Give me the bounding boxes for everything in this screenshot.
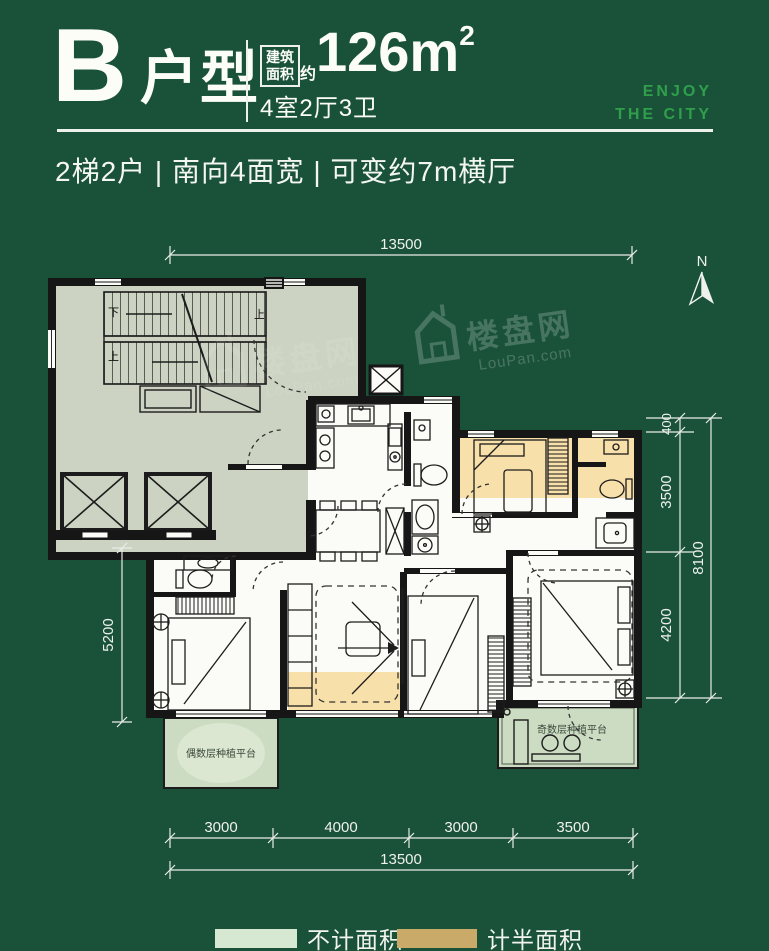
dim-top-total: 13500 xyxy=(380,236,422,253)
dim-bottom-1: 4000 xyxy=(324,819,357,836)
platform-left: 偶数层种植平台 xyxy=(164,718,278,788)
wardrobe xyxy=(176,597,234,614)
legend-item-no-area: 不计面积 xyxy=(215,921,403,951)
stair-up-label: 上 xyxy=(108,350,119,363)
legend-swatch-no-area xyxy=(215,929,297,948)
floorplan-poster: B 户型 建筑 面积 约 126m2 4室2厅3卫 ENJOY THE CITY… xyxy=(0,0,769,951)
legend: 不计面积 计半面积 xyxy=(0,912,769,951)
legend-item-half-area: 计半面积 xyxy=(397,921,583,951)
dim-right-total: 8100 xyxy=(690,541,707,574)
flue-shaft xyxy=(370,366,402,394)
platform-right-label: 奇数层种植平台 xyxy=(537,723,607,736)
stair-up-label: 上 xyxy=(254,308,265,321)
platform-right: 奇数层种植平台 xyxy=(498,704,638,768)
dim-right-2: 4200 xyxy=(658,608,675,641)
floor-plan: 楼盘网 LouPan.com 偶数层种植平台 奇数层种植平台 xyxy=(0,0,769,951)
dim-bottom-0: 3000 xyxy=(204,819,237,836)
north-arrow: N xyxy=(690,253,714,304)
ceiling-fan-symbol xyxy=(153,614,169,630)
sliding-partition xyxy=(401,588,404,684)
dim-bottom-2: 3000 xyxy=(444,819,477,836)
ceiling-fan-symbol xyxy=(153,692,169,708)
dim-left: 5200 xyxy=(100,618,117,651)
north-label: N xyxy=(697,253,708,270)
dim-bottom-total: 13500 xyxy=(380,851,422,868)
platform-left-label: 偶数层种植平台 xyxy=(186,747,256,760)
wardrobe xyxy=(488,636,504,712)
wardrobe xyxy=(548,438,568,494)
legend-swatch-half-area xyxy=(397,929,477,948)
dim-right-0: 400 xyxy=(659,413,674,435)
stair-down-label: 下 xyxy=(108,307,119,319)
dim-bottom-3: 3500 xyxy=(556,819,589,836)
dim-right-1: 3500 xyxy=(658,475,675,508)
